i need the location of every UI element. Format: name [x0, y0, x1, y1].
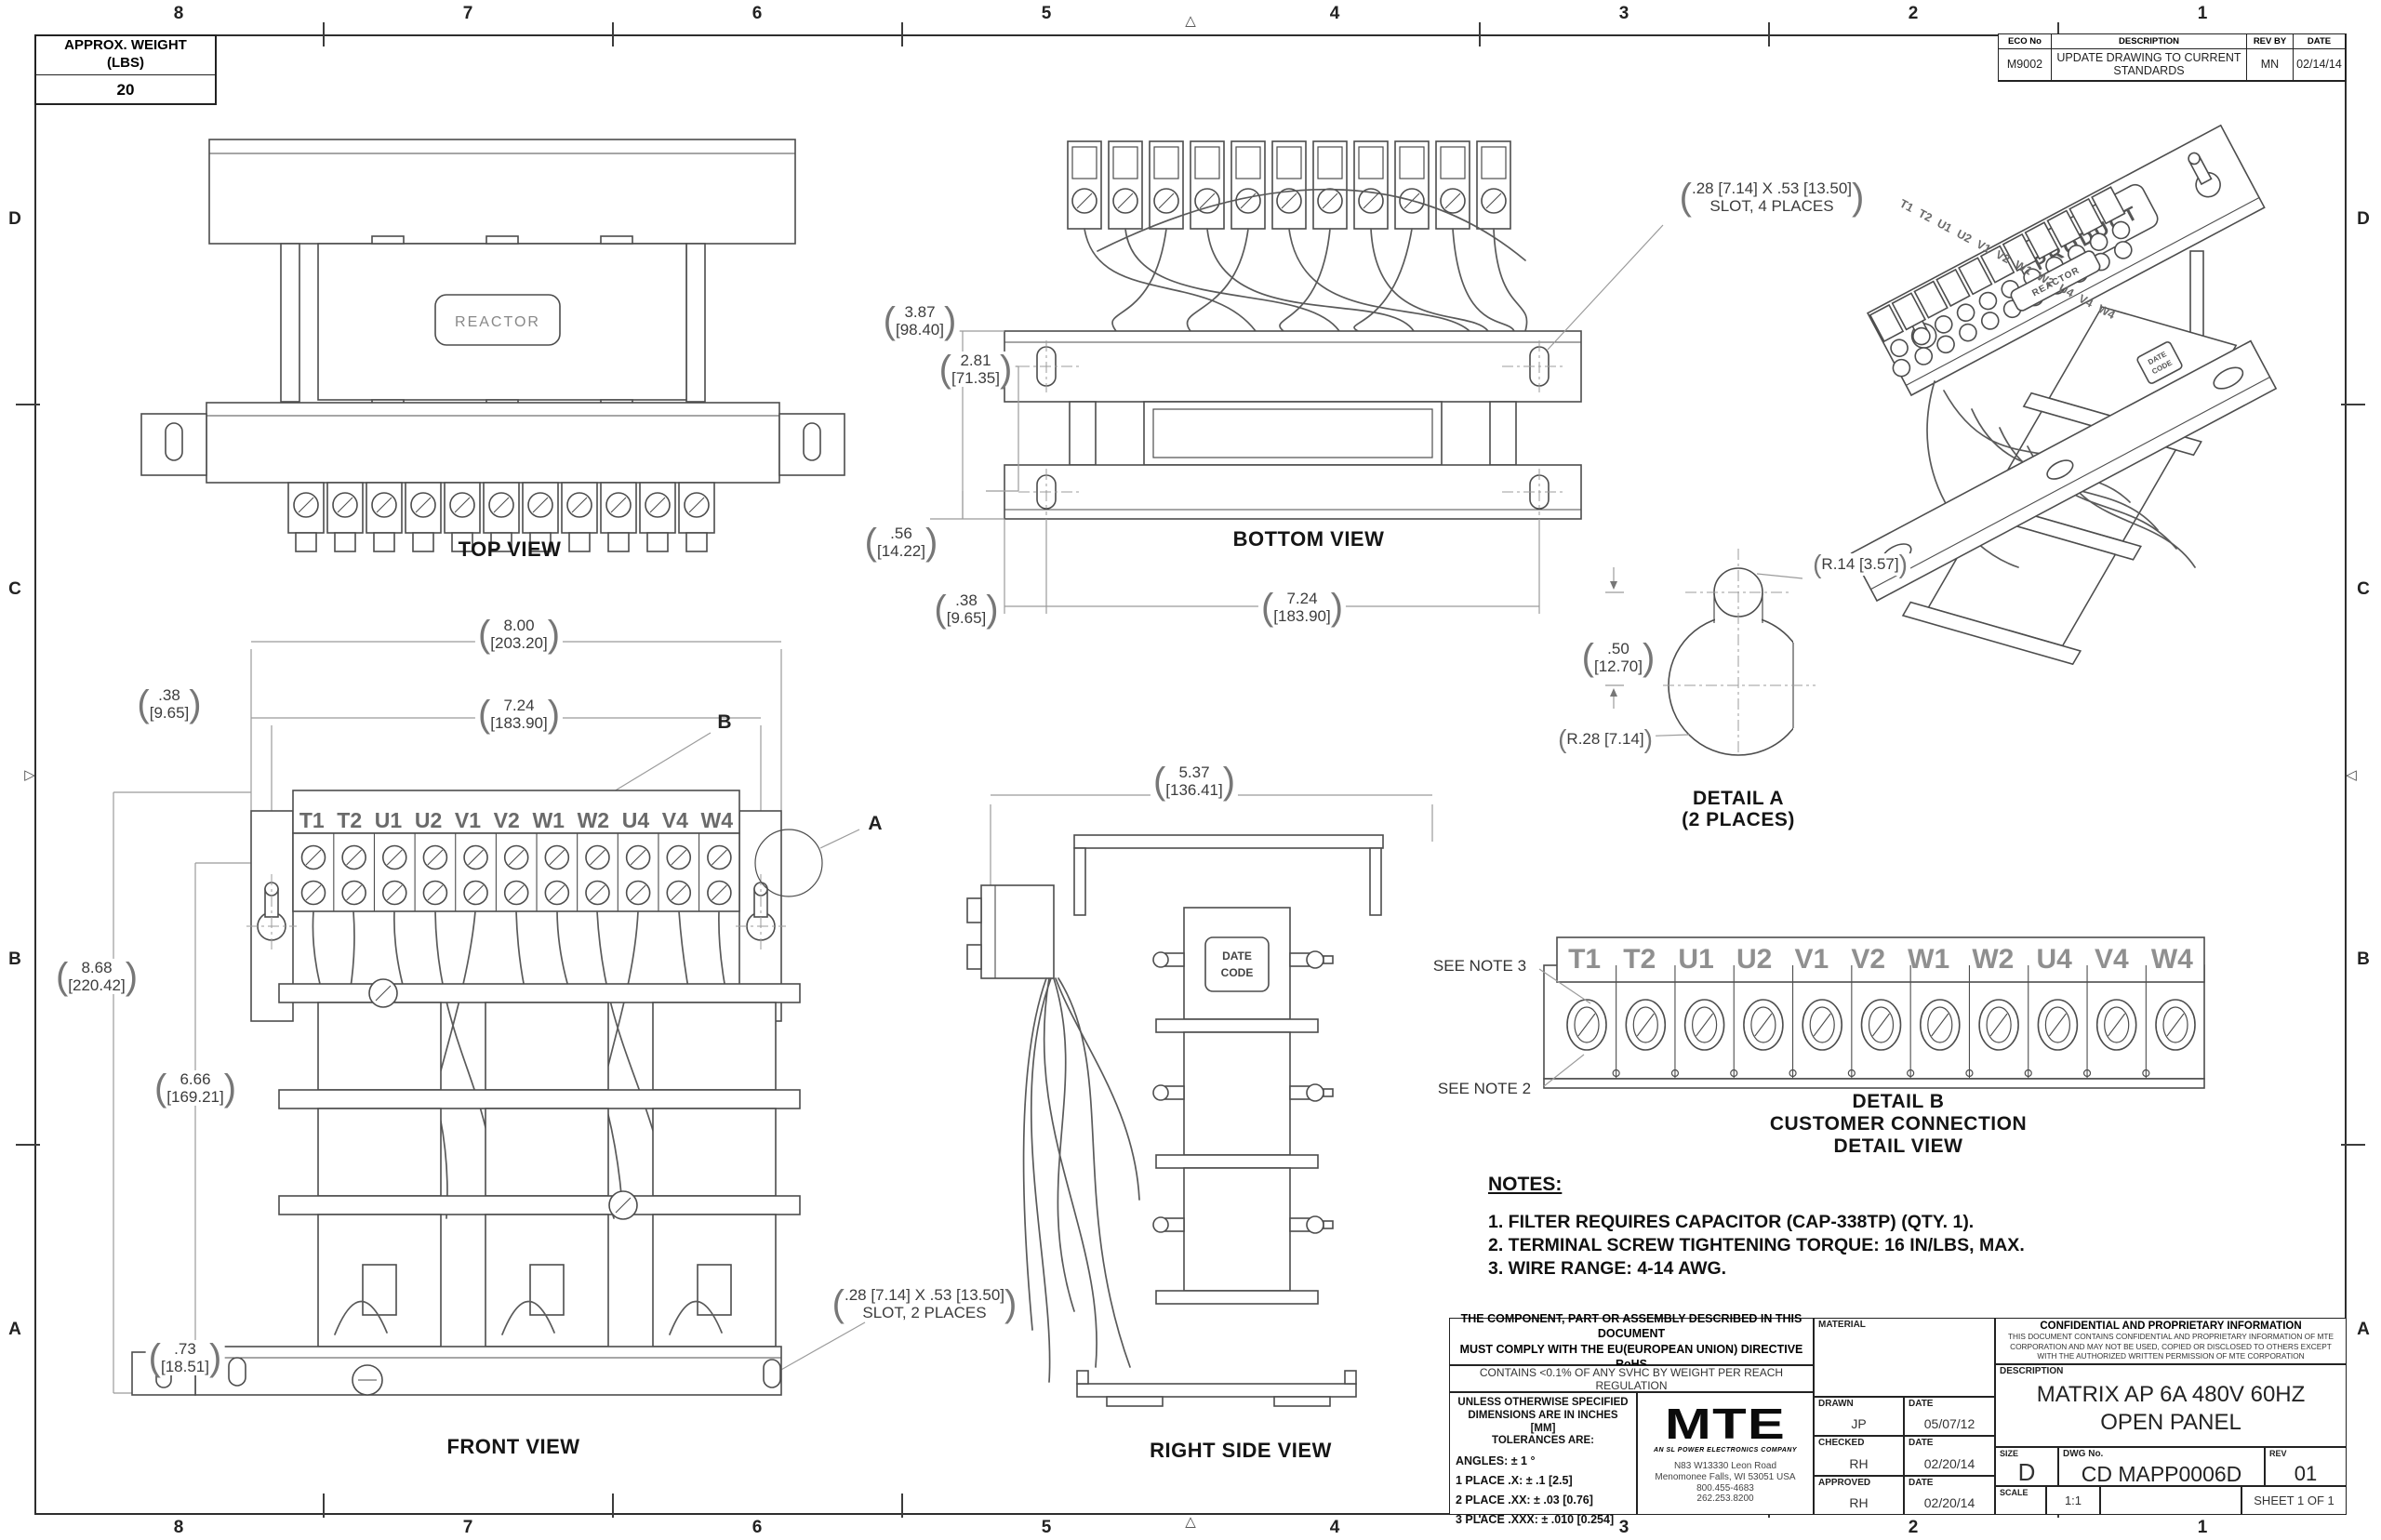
material-cell: MATERIAL	[1814, 1318, 1995, 1397]
dim-front-hole-height: (6.66[169.21])	[152, 1070, 239, 1106]
slot-callout-2-places: (.28 [7.14] X .53 [13.50]SLOT, 2 PLACES)	[830, 1286, 1020, 1321]
dim-detail-a-offset: (.50[12.70])	[1579, 640, 1658, 675]
size-cell: SIZE D	[1995, 1447, 2058, 1486]
zone-col: 7	[463, 1518, 473, 1538]
zone-row: A	[2357, 1320, 2370, 1340]
detail-a-caption: DETAIL A	[1693, 788, 1784, 810]
note-item: 1. FILTER REQUIRES CAPACITOR (CAP-338TP)…	[1488, 1211, 2232, 1234]
eco-description: UPDATE DRAWING TO CURRENTSTANDARDS	[2052, 49, 2247, 81]
detail-a-places: (2 PLACES)	[1682, 809, 1795, 831]
svg-text:CODE: CODE	[1221, 966, 1254, 979]
checked-cell: CHECKED RH	[1814, 1436, 1904, 1476]
mte-logo-block: MTE AN SL POWER ELECTRONICS COMPANY N83 …	[1637, 1392, 1814, 1515]
zone-col: 7	[463, 4, 473, 24]
dim-detail-a-radius-main: (R.28 [7.14])	[1555, 728, 1656, 750]
rev-cell: REV 01	[2265, 1447, 2347, 1486]
center-mark-icon: △	[1185, 1513, 1196, 1530]
top-view-caption: TOP VIEW	[459, 538, 562, 562]
right-side-view-drawing: DATE CODE	[967, 716, 1488, 1460]
top-view-drawing: REACTOR	[140, 126, 846, 563]
note-item: 3. WIRE RANGE: 4-14 AWG.	[1488, 1257, 2232, 1281]
zone-row: A	[8, 1320, 21, 1340]
zone-col: 5	[1042, 4, 1052, 24]
center-mark-icon: ▷	[24, 766, 35, 783]
approved-date-cell: DATE 02/20/14	[1904, 1476, 1995, 1515]
see-note-2-label: SEE NOTE 2	[1438, 1080, 1531, 1098]
sheet-cell: SHEET 1 OF 1	[2241, 1486, 2347, 1515]
scale-empty-cell	[2100, 1486, 2241, 1515]
dim-bottom-hole-height: (2.81[71.35])	[937, 352, 1016, 387]
zone-col: 6	[752, 1518, 763, 1538]
reach-statement: CONTAINS <0.1% OF ANY SVHC BY WEIGHT PER…	[1449, 1365, 1814, 1392]
zone-col: 6	[752, 4, 763, 24]
confidential-cell: CONFIDENTIAL AND PROPRIETARY INFORMATION…	[1995, 1318, 2347, 1364]
checked-date-cell: DATE 02/20/14	[1904, 1436, 1995, 1476]
eco-number: M9002	[1999, 49, 2052, 81]
approx-weight-box: APPROX. WEIGHT (LBS) 20	[34, 34, 217, 105]
mte-address: N83 W13330 Leon RoadMenomonee Falls, WI …	[1655, 1461, 1795, 1505]
zone-col: 2	[1909, 4, 1919, 24]
dim-front-hole-width: (7.24[183.90])	[475, 697, 563, 732]
front-view-drawing	[56, 614, 1042, 1460]
mte-logo: MTE	[1665, 1402, 1786, 1445]
eco-header: DATE	[2294, 34, 2346, 49]
weight-value: 20	[36, 75, 215, 100]
eco-date: 02/14/14	[2294, 49, 2346, 81]
eco-header: REV BY	[2247, 34, 2294, 49]
dim-right-depth: (5.37[136.41])	[1151, 763, 1238, 799]
zone-row: B	[2357, 949, 2370, 970]
drawn-date-cell: DATE 05/07/12	[1904, 1397, 1995, 1436]
center-mark-icon: △	[1185, 12, 1196, 29]
reactor-label: REACTOR	[455, 314, 540, 330]
dim-bottom-hole-width: (7.24[183.90])	[1258, 590, 1346, 625]
zone-col: 1	[2198, 1518, 2208, 1538]
zone-col: 5	[1042, 1518, 1052, 1538]
center-mark-icon: ◁	[2346, 766, 2357, 783]
callout-a: A	[868, 813, 882, 835]
front-view-caption: FRONT VIEW	[446, 1435, 579, 1459]
weight-units: (LBS)	[107, 55, 144, 71]
dwg-no-cell: DWG No. CD MAPP0006D	[2058, 1447, 2265, 1486]
slot-callout-4-places: (.28 [7.14] X .53 [13.50]SLOT, 4 PLACES)	[1677, 179, 1868, 215]
weight-title: APPROX. WEIGHT	[64, 37, 187, 53]
eco-header: DESCRIPTION	[2052, 34, 2247, 49]
eco-header: ECO No	[1999, 34, 2052, 49]
mte-tagline: AN SL POWER ELECTRONICS COMPANY	[1654, 1447, 1797, 1454]
approved-cell: APPROVED RH	[1814, 1476, 1904, 1515]
scale-value-cell: 1:1	[2046, 1486, 2100, 1515]
title-block: THE COMPONENT, PART OR ASSEMBLY DESCRIBE…	[1449, 1318, 2347, 1515]
zone-col: 8	[174, 1518, 184, 1538]
description-cell: DESCRIPTION MATRIX AP 6A 480V 60HZOPEN P…	[1995, 1364, 2347, 1447]
dim-bottom-height-overall: (3.87[98.40])	[881, 303, 960, 339]
right-side-view-caption: RIGHT SIDE VIEW	[1150, 1439, 1332, 1463]
zone-col: 3	[1619, 4, 1629, 24]
detail-b-caption2: CUSTOMER CONNECTION	[1770, 1113, 2027, 1135]
dim-front-width-overall: (8.00[203.20])	[475, 617, 563, 652]
note-item: 2. TERMINAL SCREW TIGHTENING TORQUE: 16 …	[1488, 1234, 2232, 1257]
dim-bottom-side-offset: (.38[9.65])	[931, 591, 1001, 627]
dim-front-base-offset: (.73[18.51])	[146, 1340, 225, 1375]
dim-detail-a-radius-top: (R.14 [3.57])	[1810, 553, 1910, 576]
tolerance-block: UNLESS OTHERWISE SPECIFIEDDIMENSIONS ARE…	[1449, 1392, 1637, 1515]
detail-b-caption: DETAIL B	[1853, 1091, 1945, 1113]
eco-revision-table: ECO No DESCRIPTION REV BY DATE M9002 UPD…	[1998, 33, 2347, 82]
detail-b-terminal-labels: T1T2U1U2V1V2W1W2U4V4W4	[1557, 937, 2204, 982]
notes-title: NOTES:	[1488, 1174, 2232, 1196]
dim-front-side-offset: (.38[9.65])	[134, 686, 204, 722]
zone-col: 4	[1330, 4, 1340, 24]
zone-row: D	[8, 209, 21, 230]
date-code-label: DATE	[1222, 949, 1252, 962]
dim-front-height-overall: (8.68[220.42])	[53, 959, 140, 994]
zone-col: 8	[174, 4, 184, 24]
drawing-sheet: 8 7 6 5 4 3 2 1 8 7 6 5 4 3 2 1 D C B A …	[0, 0, 2381, 1540]
zone-col: 4	[1330, 1518, 1340, 1538]
front-terminal-labels: T1T2U1U2V1V2W1W2U4V4W4	[293, 803, 739, 837]
zone-col: 1	[2198, 4, 2208, 24]
detail-b-caption3: DETAIL VIEW	[1834, 1135, 1963, 1158]
eco-revby: MN	[2247, 49, 2294, 81]
see-note-3-label: SEE NOTE 3	[1433, 957, 1526, 976]
bottom-view-caption: BOTTOM VIEW	[1233, 527, 1385, 551]
scale-label-cell: SCALE	[1995, 1486, 2046, 1515]
notes-block: NOTES: 1. FILTER REQUIRES CAPACITOR (CAP…	[1488, 1174, 2232, 1281]
rohs-statement: THE COMPONENT, PART OR ASSEMBLY DESCRIBE…	[1449, 1318, 1814, 1365]
zone-row: C	[8, 579, 21, 600]
zone-row: B	[8, 949, 21, 970]
callout-b: B	[717, 711, 731, 734]
dim-bottom-edge-offset: (.56[14.22])	[862, 524, 941, 560]
drawn-cell: DRAWN JP	[1814, 1397, 1904, 1436]
